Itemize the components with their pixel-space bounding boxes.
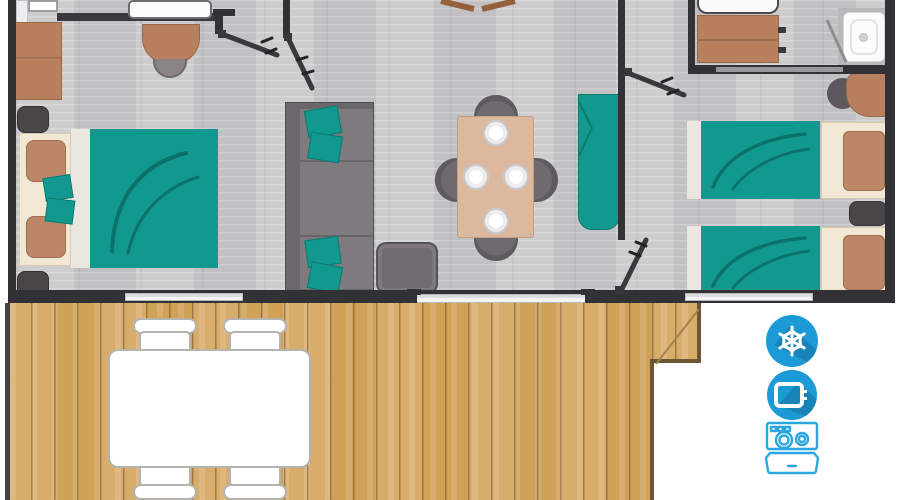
outdoor-chair-back — [133, 484, 197, 500]
deck-edge — [650, 361, 654, 500]
deck-edge-left — [5, 303, 10, 500]
tv-icon — [766, 369, 818, 421]
floorplan-canvas — [0, 0, 900, 500]
air-conditioning-icon — [765, 314, 819, 368]
deck-lower — [8, 363, 652, 500]
outdoor-table — [108, 349, 311, 468]
dishwasher-icon — [763, 422, 821, 476]
outdoor-chair-back — [223, 484, 287, 500]
deck-step-bevel — [648, 300, 708, 370]
door-swings — [0, 0, 900, 310]
